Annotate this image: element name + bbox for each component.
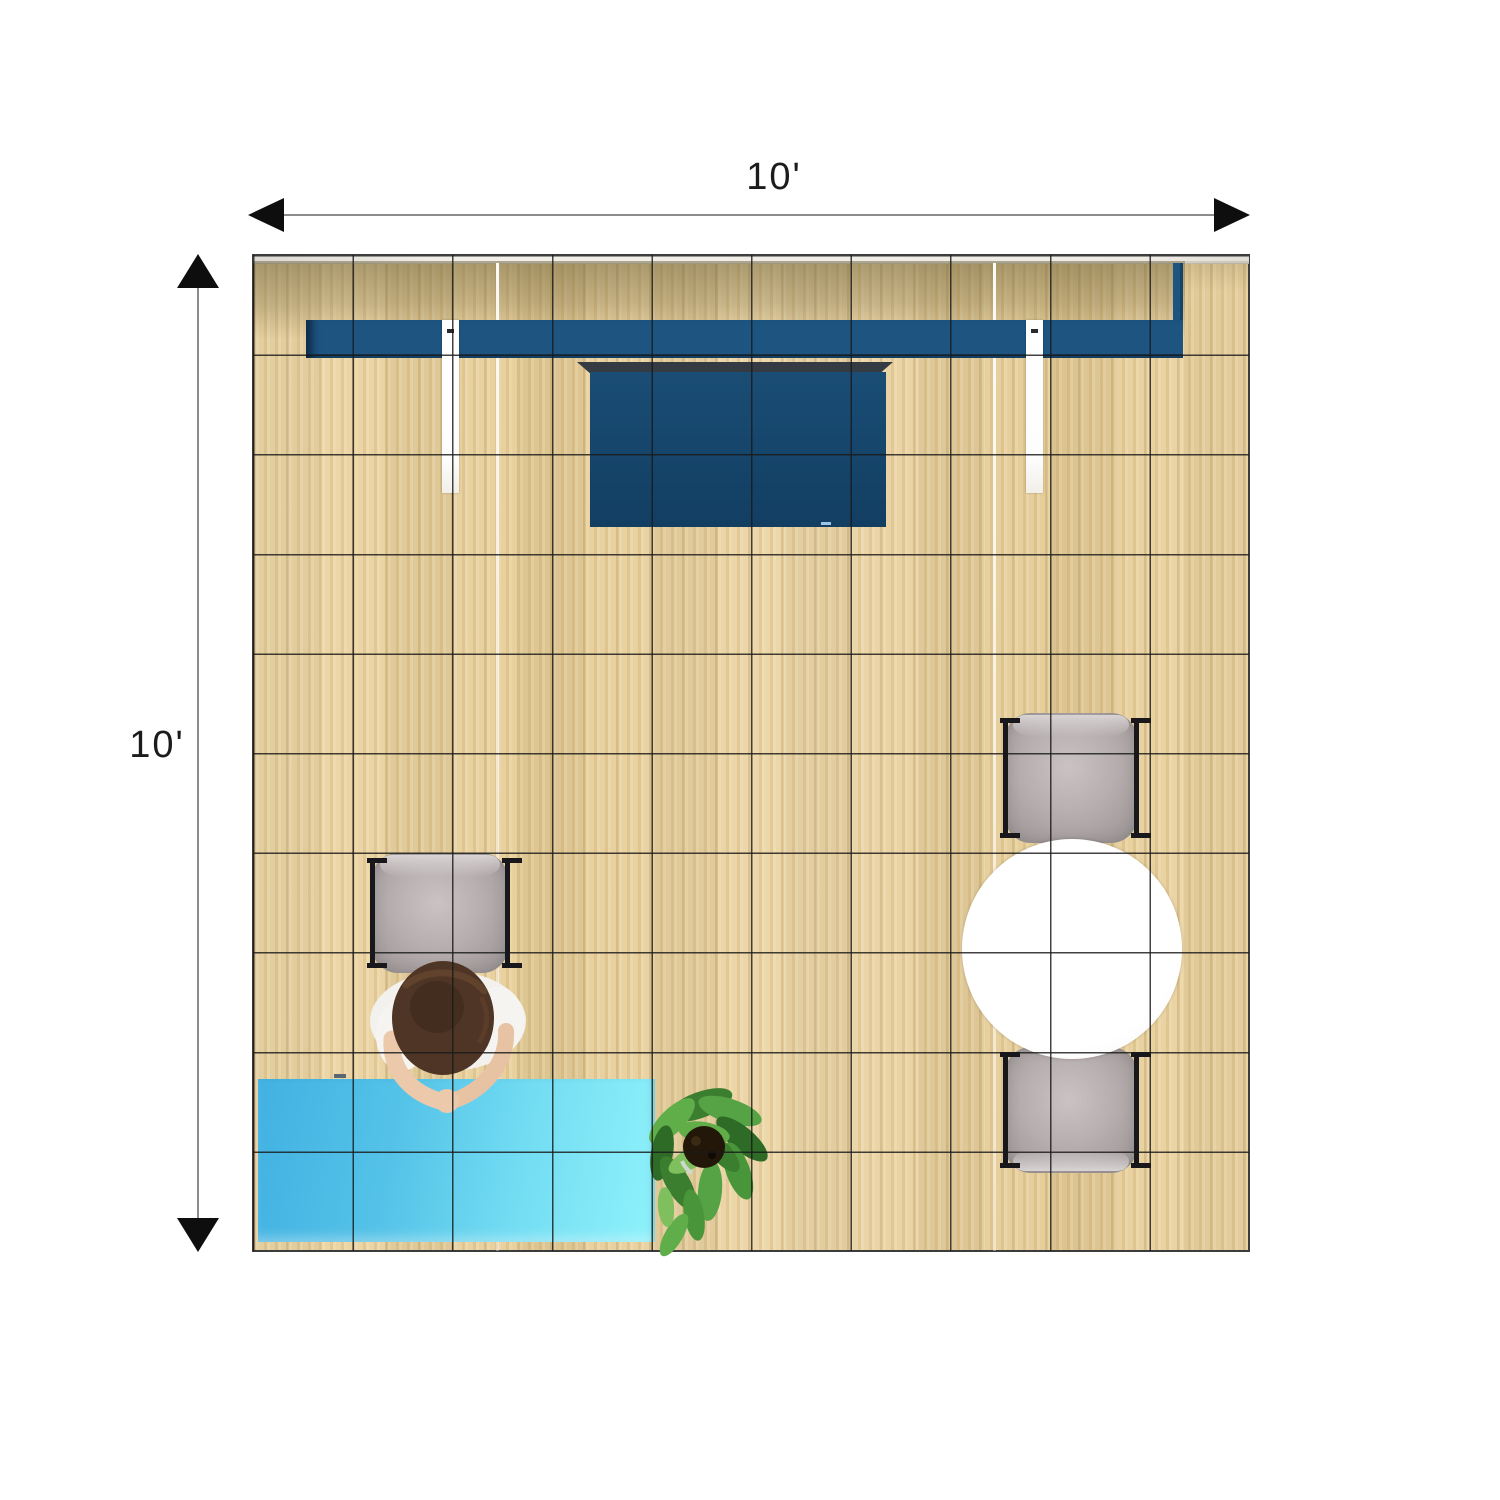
- chair-frame-right: [1134, 720, 1139, 836]
- height-dimension-line: [197, 272, 199, 1234]
- width-dimension-line: [268, 214, 1232, 216]
- chair-cushion: [1005, 1047, 1137, 1173]
- light-strip-connector-icon: [1031, 329, 1038, 333]
- light-strip-right: [1026, 320, 1043, 493]
- width-dimension-label: 10': [714, 156, 834, 199]
- booth-floor: [253, 255, 1249, 1251]
- potted-plant: [638, 1075, 778, 1265]
- light-strip-connector-icon: [447, 329, 454, 333]
- floor-plank-seam: [993, 263, 996, 1251]
- guest-chair-top: [1005, 713, 1137, 843]
- tv-label-mark: [821, 522, 831, 525]
- light-strip-left: [442, 320, 459, 493]
- desk-tag-mark: [334, 1074, 346, 1078]
- person-top-view: [358, 955, 534, 1117]
- chair-frame-left: [1003, 720, 1008, 836]
- chair-cushion: [1005, 713, 1137, 843]
- tv-display: [590, 372, 886, 527]
- header-wall-shelf: [306, 320, 1183, 358]
- chair-frame-left: [370, 860, 375, 966]
- arrowhead-up-icon: [177, 254, 219, 288]
- chair-frame-right: [1134, 1054, 1139, 1166]
- arrowhead-down-icon: [177, 1218, 219, 1252]
- chair-frame-right: [505, 860, 510, 966]
- chair-frame-left: [1003, 1054, 1008, 1166]
- height-dimension-label: 10': [97, 724, 217, 767]
- round-table: [962, 839, 1182, 1059]
- floor-plan-canvas: 10' 10': [0, 0, 1500, 1500]
- guest-chair-bottom: [1005, 1047, 1137, 1173]
- arrowhead-right-icon: [1214, 198, 1250, 232]
- back-wall-shadow-right: [1185, 261, 1249, 291]
- arrowhead-left-icon: [248, 198, 284, 232]
- header-wall-return: [1173, 263, 1183, 320]
